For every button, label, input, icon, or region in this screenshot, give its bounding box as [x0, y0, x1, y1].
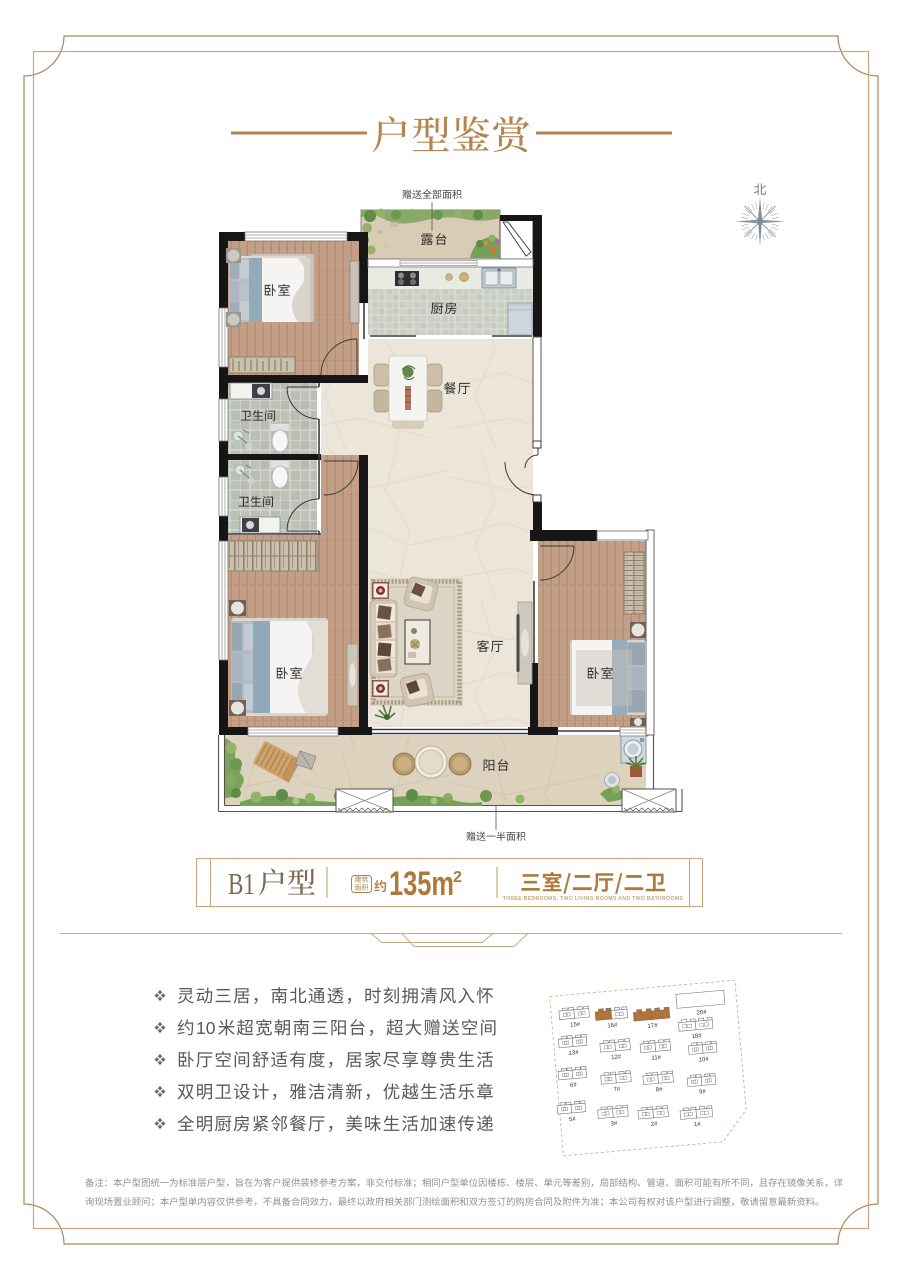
svg-text:10#: 10#	[698, 1057, 709, 1064]
svg-text:17#: 17#	[647, 1023, 658, 1030]
svg-text:11#: 11#	[651, 1055, 662, 1062]
svg-text:6#: 6#	[570, 1082, 578, 1089]
svg-text:1#: 1#	[694, 1122, 702, 1129]
svg-text:15#: 15#	[570, 1022, 581, 1029]
svg-text:9#: 9#	[699, 1089, 707, 1096]
svg-text:18#: 18#	[691, 1033, 702, 1040]
svg-text:16#: 16#	[607, 1023, 618, 1030]
svg-text:10: 10	[196, 1018, 216, 1038]
svg-text:12#: 12#	[611, 1054, 622, 1061]
svg-text:2#: 2#	[651, 1121, 659, 1128]
svg-text:20#: 20#	[696, 1010, 707, 1017]
svg-text:5#: 5#	[569, 1117, 577, 1124]
svg-text:135m: 135m	[389, 865, 454, 903]
svg-text:B1: B1	[228, 866, 255, 901]
svg-text:2: 2	[453, 869, 462, 886]
svg-text:7#: 7#	[613, 1087, 621, 1094]
svg-text:THREE BEDROOMS, TWO LIVING ROO: THREE BEDROOMS, TWO LIVING ROOMS AND TWO…	[503, 896, 684, 902]
svg-text:13#: 13#	[568, 1050, 579, 1057]
svg-text:8#: 8#	[656, 1087, 664, 1094]
svg-text:3#: 3#	[610, 1121, 618, 1128]
